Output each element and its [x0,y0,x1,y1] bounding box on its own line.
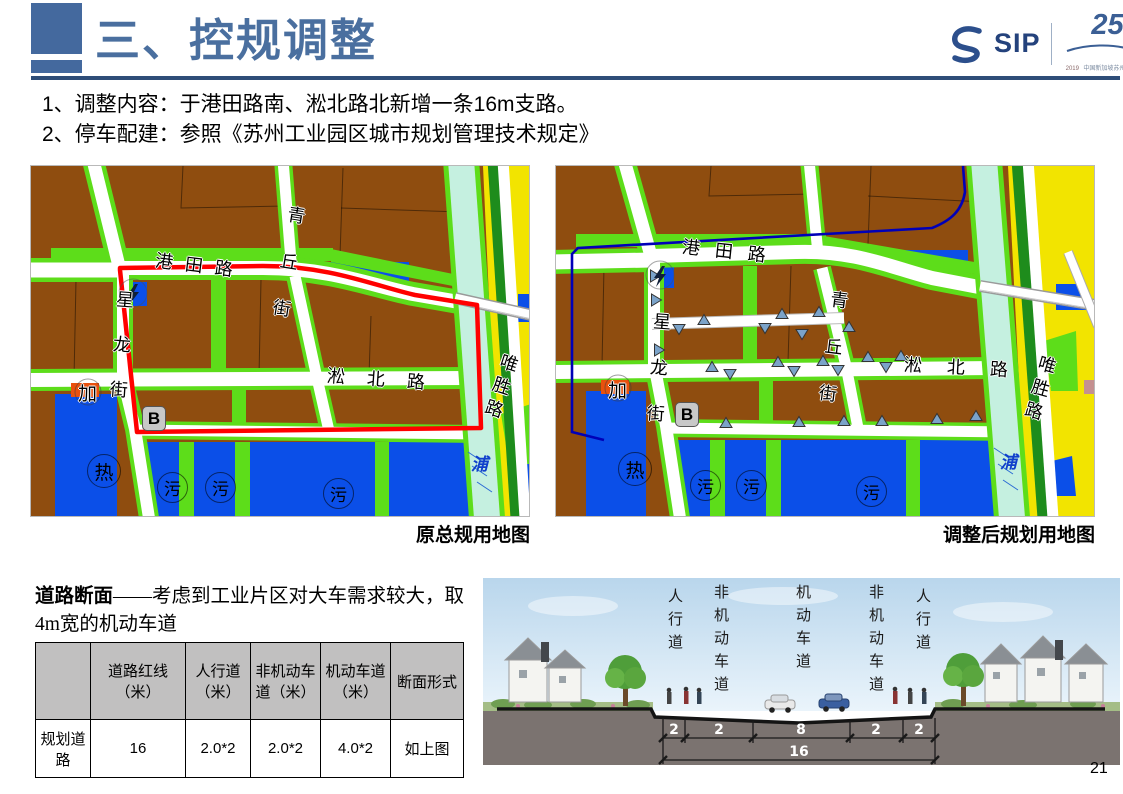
dim-bike-right: 2 [871,722,881,738]
title-decoration-square [31,3,82,54]
dim-total: 16 [789,744,808,760]
lane-label-motor: 机动车道 [792,584,813,676]
lane-label-bike-left: 非机动车道 [710,584,731,699]
table-header-motorlane: 机动车道（米） [321,643,391,720]
logo-divider [1051,23,1052,65]
poi-label-sewage: 污 [856,476,887,507]
slide: 三、控规调整 SIP 25 1994-2019 中国新加坡苏州工业园区 1、调整… [0,0,1123,794]
cell-motorlane: 4.0*2 [321,720,391,778]
poi-label-sewage: 污 [205,472,236,503]
table-header-row: 道路红线（米） 人行道（米） 非机动车道（米） 机动车道（米） 断面形式 [36,643,464,720]
lane-label-sidewalk-left: 人行道 [664,588,685,657]
bullet-list: 1、调整内容：于港田路南、淞北路北新增一条16m支路。 2、停车配建：参照《苏州… [42,90,600,150]
page-number: 21 [1090,760,1108,778]
title-rule [31,76,1120,80]
poi-label-heat: 热 [87,454,121,488]
cell-road-name: 规划道路 [36,720,91,778]
table-header-sectionform: 断面形式 [391,643,464,720]
table-row: 规划道路 16 2.0*2 2.0*2 4.0*2 如上图 [36,720,464,778]
cell-sectionform: 如上图 [391,720,464,778]
dim-sidewalk-left: 2 [669,722,679,738]
anniversary-number: 25 [1091,9,1123,41]
dim-bike-left: 2 [714,722,724,738]
dim-sidewalk-right: 2 [914,722,924,738]
road-spec-table: 道路红线（米） 人行道（米） 非机动车道（米） 机动车道（米） 断面形式 规划道… [35,642,464,778]
title-decoration-bar [31,60,82,73]
caption-original-plan: 原总规用地图 [30,520,530,547]
road-section-heading-bold: 道路断面 [35,585,113,607]
river-label: 浦 [1000,448,1017,473]
sip-logo: SIP 25 1994-2019 中国新加坡苏州工业园区 [948,12,1123,75]
bullet-item-1: 1、调整内容：于港田路南、淞北路北新增一条16m支路。 [42,90,600,120]
poi-label-gas: 加 [608,376,627,403]
houses-right [981,636,1107,702]
new-road-16m [652,318,844,324]
lane-label-bike-right: 非机动车道 [865,584,886,699]
bullet-item-2: 2、停车配建：参照《苏州工业园区城市规划管理技术规定》 [42,120,600,150]
caption-adjusted-plan: 调整后规划用地图 [555,520,1095,547]
dim-motor: 8 [796,722,806,738]
table-header-sidewalk: 人行道（米） [186,643,251,720]
anniversary-swoosh-icon [1063,43,1123,52]
lane-label-sidewalk-right: 人行道 [912,588,933,657]
block-b-badge: B [142,406,166,431]
block-b-badge: B [675,402,699,427]
table-header-empty [36,643,91,720]
road-section-heading: 道路断面——考虑到工业片区对大车需求较大，取4m宽的机动车道 [35,582,485,639]
cell-redline: 16 [91,720,186,778]
poi-label-sewage: 污 [690,470,721,501]
river-label: 浦 [471,450,488,475]
poi-label-sewage: 污 [736,470,767,501]
sip-swirl-icon [948,24,988,64]
poi-label-heat: 热 [618,452,652,486]
poi-label-sewage: 污 [323,478,354,509]
cross-section-diagram: 2 2 8 2 2 16 人行道 非机动车道 机动车道 非机动车道 人行道 [483,578,1120,765]
anniversary-logo: 25 1994-2019 中国新加坡苏州工业园区 [1062,12,1123,75]
table-header-bikelane: 非机动车道（米） [251,643,321,720]
page-title: 三、控规调整 [95,4,377,69]
anniversary-org: 中国新加坡苏州工业园区 [1083,66,1123,72]
map-adjusted-plan: 港田路 青丘街 星龙街 淞北路 唯胜路 加 B 热 污 污 污 浦 [555,165,1095,517]
poi-label-gas: 加 [78,379,97,406]
sip-logo-text: SIP [994,28,1041,59]
poi-label-sewage: 污 [157,472,188,503]
cell-bikelane: 2.0*2 [251,720,321,778]
table-header-redline: 道路红线（米） [91,643,186,720]
cell-sidewalk: 2.0*2 [186,720,251,778]
map-original-plan: 港田路 青丘街 星龙街 淞北路 唯胜路 加 B 热 污 污 污 浦 [30,165,530,517]
